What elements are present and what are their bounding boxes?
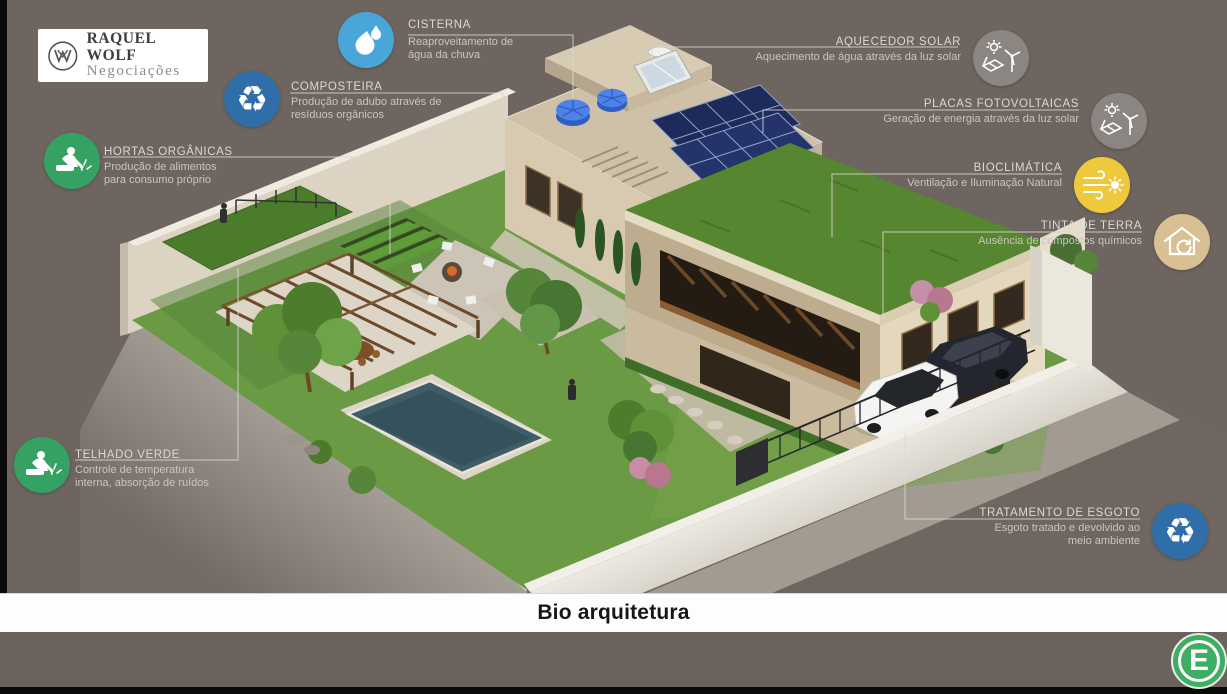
brand-name: RAQUEL WOLF	[87, 31, 208, 64]
eco-house-icon	[1154, 214, 1210, 270]
feature-description: Ausência de compostos químicos	[978, 235, 1142, 248]
bottom-strip	[0, 632, 1227, 687]
solar-energy-icon	[973, 30, 1029, 86]
slide-title: Bio arquitetura	[537, 601, 689, 625]
feature-composteira: ♻ COMPOSTEIRA Produção de adubo através …	[224, 71, 443, 127]
feature-title: TRATAMENTO DE ESGOTO	[978, 507, 1140, 519]
feature-title: CISTERNA	[408, 19, 530, 31]
e-logo: E	[1171, 633, 1227, 689]
brand-subtitle: Negociações	[87, 64, 208, 80]
water-drops-icon	[338, 12, 394, 68]
feature-title: PLACAS FOTOVOLTAICAS	[883, 98, 1079, 110]
feature-placas-fotovoltaicas: PLACAS FOTOVOLTAICAS Geração de energia …	[883, 93, 1147, 149]
feature-title: TINTA DE TERRA	[978, 220, 1142, 232]
svg-text:♻: ♻	[1164, 512, 1196, 553]
slide-title-strip: Bio arquitetura	[0, 593, 1227, 632]
feature-cisterna: CISTERNA Reaproveitamento de água da chu…	[338, 12, 530, 68]
feature-description: Esgoto tratado e devolvido ao meio ambie…	[978, 522, 1140, 547]
feature-description: Reaproveitamento de água da chuva	[408, 36, 530, 61]
e-logo-letter: E	[1189, 644, 1209, 678]
feature-title: TELHADO VERDE	[75, 449, 233, 461]
gardener-icon	[14, 437, 70, 493]
feature-description: Aquecimento de água através da luz solar	[756, 51, 961, 64]
solar-energy-icon	[1091, 93, 1147, 149]
wind-sun-icon	[1074, 157, 1130, 213]
feature-hortas-organicas: HORTAS ORGÂNICAS Produção de alimentos p…	[44, 133, 236, 189]
left-edge	[0, 0, 7, 593]
feature-bioclimatica: BIOCLIMÁTICA Ventilação e Iluminação Nat…	[907, 157, 1130, 213]
brand-logo: RAQUEL WOLF Negociações	[38, 29, 208, 82]
feature-title: AQUECEDOR SOLAR	[756, 36, 961, 48]
feature-telhado-verde: TELHADO VERDE Controle de temperatura in…	[14, 437, 233, 493]
feature-description: Ventilação e Iluminação Natural	[907, 177, 1062, 190]
feature-aquecedor-solar: AQUECEDOR SOLAR Aquecimento de água atra…	[756, 30, 1029, 86]
svg-text:♻: ♻	[236, 80, 268, 121]
feature-tinta-de-terra: TINTA DE TERRA Ausência de compostos quí…	[978, 214, 1210, 270]
feature-title: BIOCLIMÁTICA	[907, 162, 1062, 174]
feature-description: Geração de energia através da luz solar	[883, 113, 1079, 126]
feature-description: Produção de adubo através de resíduos or…	[291, 96, 443, 121]
feature-description: Controle de temperatura interna, absorçã…	[75, 464, 233, 489]
gardener-icon	[44, 133, 100, 189]
feature-tratamento-de-esgoto: ♻ TRATAMENTO DE ESGOTO Esgoto tratado e …	[978, 503, 1208, 559]
bottom-bar	[0, 687, 1227, 694]
feature-title: HORTAS ORGÂNICAS	[104, 146, 236, 158]
recycle-icon: ♻	[1152, 503, 1208, 559]
presentation-slide: RAQUEL WOLF Negociações CISTERNA Reaprov…	[0, 0, 1227, 694]
feature-title: COMPOSTEIRA	[291, 81, 443, 93]
feature-description: Produção de alimentos para consumo própr…	[104, 161, 236, 186]
recycle-icon: ♻	[224, 71, 280, 127]
rw-monogram-icon	[46, 39, 80, 73]
